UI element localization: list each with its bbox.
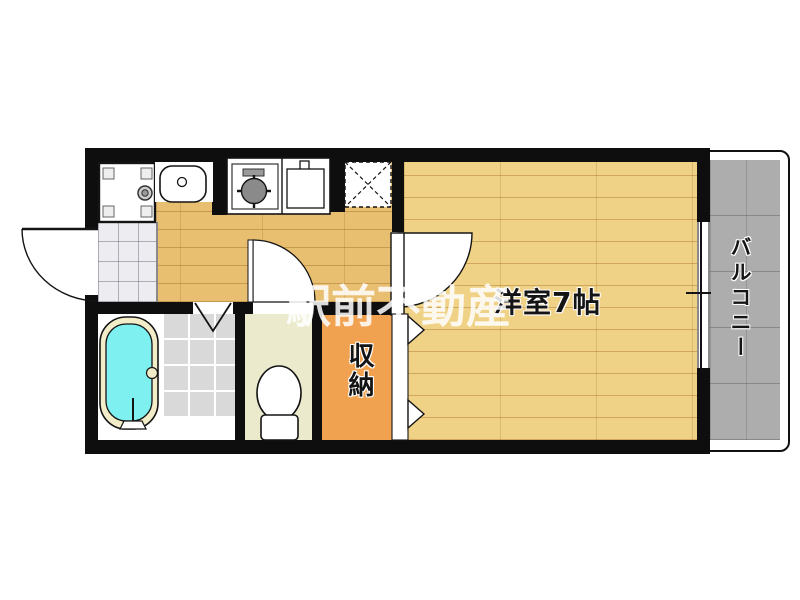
- wall-bath-toilet: [235, 314, 245, 440]
- wall-room-divider: [392, 148, 404, 232]
- wall-right-upper: [697, 148, 710, 222]
- wall-right-lower: [697, 368, 710, 440]
- bathroom-tile-floor: [162, 314, 235, 418]
- entrance-tile-floor: [98, 222, 158, 302]
- entry-door-icon: [22, 229, 98, 301]
- wall-stub-basin: [212, 148, 227, 215]
- wall-stub-kitchen: [330, 148, 345, 212]
- wall-left-upper: [85, 148, 98, 228]
- floor-plan-canvas: 洋室7帖 収納 バルコニー 駅前不動産: [0, 0, 800, 600]
- storage-label: 収納: [341, 342, 378, 400]
- wall-hall-bath: [85, 302, 193, 314]
- wall-left-lower: [85, 295, 98, 454]
- balcony-label: バルコニー: [725, 236, 755, 361]
- watermark-text: 駅前不動産: [286, 270, 511, 335]
- wall-hall-toilet: [233, 302, 253, 314]
- wall-bottom: [85, 440, 710, 454]
